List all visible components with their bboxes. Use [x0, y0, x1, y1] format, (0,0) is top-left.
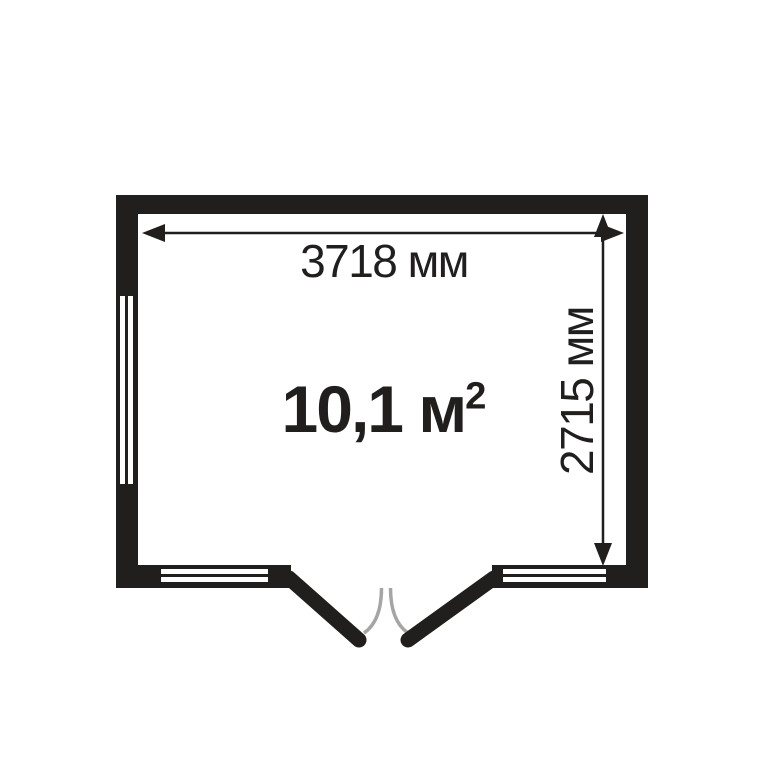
door-leaf-left-icon	[289, 578, 359, 640]
door-leaf-right-icon	[408, 578, 494, 640]
floorplan-canvas: 3718 мм 2715 мм 10,1 м2	[0, 0, 774, 772]
door-swing-arc-left-icon	[364, 588, 382, 633]
area-label: 10,1 м2	[282, 376, 487, 442]
door-swing-arc-right-icon	[391, 588, 409, 633]
area-value: 10,1 м	[282, 372, 466, 446]
dimension-arrow-left-icon	[142, 224, 165, 242]
dimension-arrow-down-icon	[594, 543, 612, 566]
width-dimension-label: 3718 мм	[300, 238, 468, 284]
height-dimension-label: 2715 мм	[554, 307, 600, 475]
dimension-arrow-up-icon	[594, 214, 612, 237]
area-superscript: 2	[465, 374, 486, 417]
